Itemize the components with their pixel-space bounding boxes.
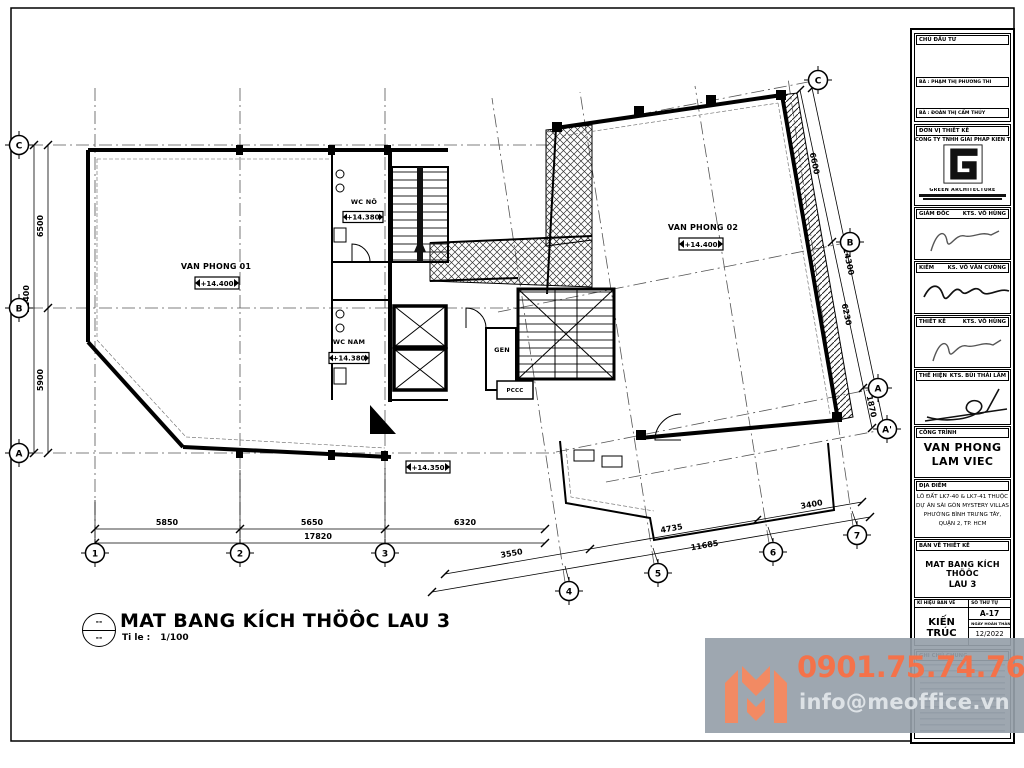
room-label-wc-nu: WC NÖ <box>351 197 377 206</box>
svg-text:+14.400: +14.400 <box>685 241 718 249</box>
sheet-number: A-17 <box>969 608 1010 620</box>
dimension-labels: 5850 5650 6320 17820 3550 4735 3400 1168… <box>22 152 878 560</box>
door-swing <box>370 405 396 434</box>
dim-label: 4735 <box>660 522 684 535</box>
location-line: LÔ ĐẤT LK7-40 & LK7-41 THUỘC <box>915 493 1010 502</box>
dim-label: 3550 <box>500 547 524 560</box>
completion-date: 12/2022 <box>969 628 1010 638</box>
title-block: CHỦ ĐẦU TƯ BÀ : PHẠM THỊ PHƯƠNG THI BÀ :… <box>910 28 1015 744</box>
elevation-marker: +14.400 <box>679 238 723 250</box>
grid-bubble-label: 1 <box>92 550 98 560</box>
drawing-title: MAT BANG KÍCH THÖÔC LAU 3 <box>120 610 450 632</box>
elevation-marker: +14.400 <box>195 277 239 289</box>
symbol-header: KÍ HIỆU BẢN VẼ <box>915 600 968 608</box>
owner-name-1: BÀ : PHẠM THỊ PHƯƠNG THI <box>916 77 1009 87</box>
room-label-van-phong-02: VAN PHONG 02 <box>668 223 738 232</box>
project-name-line1: VAN PHONG <box>915 441 1010 455</box>
grid-bubble-label: A <box>16 450 23 460</box>
location-line: QUẬN 2, TP. HCM <box>915 520 1010 529</box>
grid-bubble-label: 2 <box>237 550 243 560</box>
grid-bubble-label: B <box>847 239 854 249</box>
elevation-marker: +14.380 <box>329 353 369 364</box>
dim-label: 11685 <box>690 539 719 553</box>
drawing-name-line2: LAU 3 <box>915 580 1010 590</box>
room-label-gen: GEN <box>494 346 510 354</box>
drawing-sheet: 5850 5650 6320 17820 3550 4735 3400 1168… <box>0 0 1024 768</box>
meoffice-logo-icon <box>721 650 791 724</box>
role-block-the-hien: THỂ HIỆNKTS. BÙI THÁI LÂM <box>914 369 1011 425</box>
svg-text:+14.380: +14.380 <box>347 214 380 222</box>
terrace <box>560 441 834 540</box>
room-labels: VAN PHONG 01 +14.400 VAN PHONG 02 +14.40… <box>181 197 738 473</box>
location-line: DỰ ÁN SÀI GÒN MYSTERY VILLAS <box>915 502 1010 511</box>
designer-box: ĐƠN VỊ THIẾT KẾ CÔNG TY TNHH GIẢI PHÁP K… <box>914 124 1011 206</box>
watermark-phone: 0901.75.74.76 <box>797 650 1024 684</box>
drawing-title-symbol: -- -- <box>82 613 116 647</box>
project-name-line2: LAM VIEC <box>915 455 1010 469</box>
dim-label: 5900 <box>36 368 45 391</box>
drawing-name-line1: MAT BANG KÍCH THÖÔC <box>915 560 1010 578</box>
grid-bubble-label: B <box>16 305 23 315</box>
grid-lines <box>30 78 877 582</box>
room-label-wc-nam: WC NAM <box>333 338 365 346</box>
signature <box>919 383 1014 425</box>
role-block-kiem: KIỂMKS. VÕ VĂN CƯỜNG <box>914 261 1011 314</box>
dim-label: 6230 <box>840 303 854 327</box>
project-box: CÔNG TRÌNH VAN PHONG LAM VIEC <box>914 426 1011 478</box>
location-box: ĐỊA ĐIỂM LÔ ĐẤT LK7-40 & LK7-41 THUỘC DỰ… <box>914 479 1011 538</box>
signature <box>919 221 1014 259</box>
dim-label: 5850 <box>156 518 179 527</box>
date-header: NGÀY HOÀN THÀNH <box>969 620 1010 628</box>
scale-value: 1/100 <box>160 633 188 643</box>
svg-text:+14.380: +14.380 <box>333 355 366 363</box>
dim-label: 6500 <box>36 214 45 237</box>
room-label-van-phong-01: VAN PHONG 01 <box>181 262 251 271</box>
elevation-marker: +14.380 <box>343 212 383 223</box>
owner-box: CHỦ ĐẦU TƯ BÀ : PHẠM THỊ PHƯƠNG THI BÀ :… <box>914 33 1011 122</box>
company-name: CÔNG TY TNHH GIẢI PHÁP KIẾN TRÚC XANH <box>915 137 1010 143</box>
room-label-pccc: PCCC <box>507 388 524 394</box>
number-header: SỐ THỨ TỰ <box>969 600 1010 608</box>
green-architecture-logo-icon <box>942 144 984 184</box>
grid-bubble-label: C <box>815 77 822 87</box>
svg-text:+14.400: +14.400 <box>201 280 234 288</box>
drawing-name-box: BẢN VẼ THIẾT KẾ MAT BANG KÍCH THÖÔC LAU … <box>914 539 1011 598</box>
elevation-marker: +14.350 <box>406 461 450 473</box>
grid-bubble-label: 3 <box>382 550 388 560</box>
dim-label: 17820 <box>304 532 332 541</box>
grid-bubble-label: A' <box>882 426 892 436</box>
brand-name: GREEN ARCHITECTURE <box>915 188 1010 193</box>
grid-bubble-label: 7 <box>854 532 860 542</box>
scale-label: Ti le : <box>122 633 150 643</box>
dim-label: 1870 <box>865 395 879 419</box>
grid-bubble-label: 6 <box>770 549 776 559</box>
owner-name-2: BÀ : ĐOÀN THỊ CẨM THÚY <box>916 108 1009 118</box>
location-line: PHƯỜNG BÌNH TRƯNG TÂY, <box>915 511 1010 520</box>
signature <box>919 275 1014 313</box>
grid-bubble-label: 5 <box>655 570 661 580</box>
dim-label: 5650 <box>301 518 324 527</box>
signature <box>919 329 1014 367</box>
grid-bubble-label: A <box>875 385 882 395</box>
role-block-giam-doc: GIÁM ĐỐCKTS. VÕ HÙNG <box>914 207 1011 260</box>
watermark-banner: 0901.75.74.76 info@meoffice.vn <box>705 638 1024 733</box>
svg-text:+14.350: +14.350 <box>412 464 445 472</box>
role-block-thiet-ke: THIẾT KẾKTS. VÕ HÙNG <box>914 315 1011 368</box>
dim-label: 6320 <box>454 518 477 527</box>
discipline: KIẾN TRÚC <box>915 617 968 639</box>
designer-header: ĐƠN VỊ THIẾT KẾ <box>916 126 1009 136</box>
owner-header: CHỦ ĐẦU TƯ <box>916 35 1009 45</box>
watermark-email: info@meoffice.vn <box>799 690 1010 714</box>
grid-bubble-label: C <box>16 142 23 152</box>
grid-bubble-label: 4 <box>566 588 572 598</box>
drawing-scale: Ti le :1/100 <box>122 633 199 643</box>
